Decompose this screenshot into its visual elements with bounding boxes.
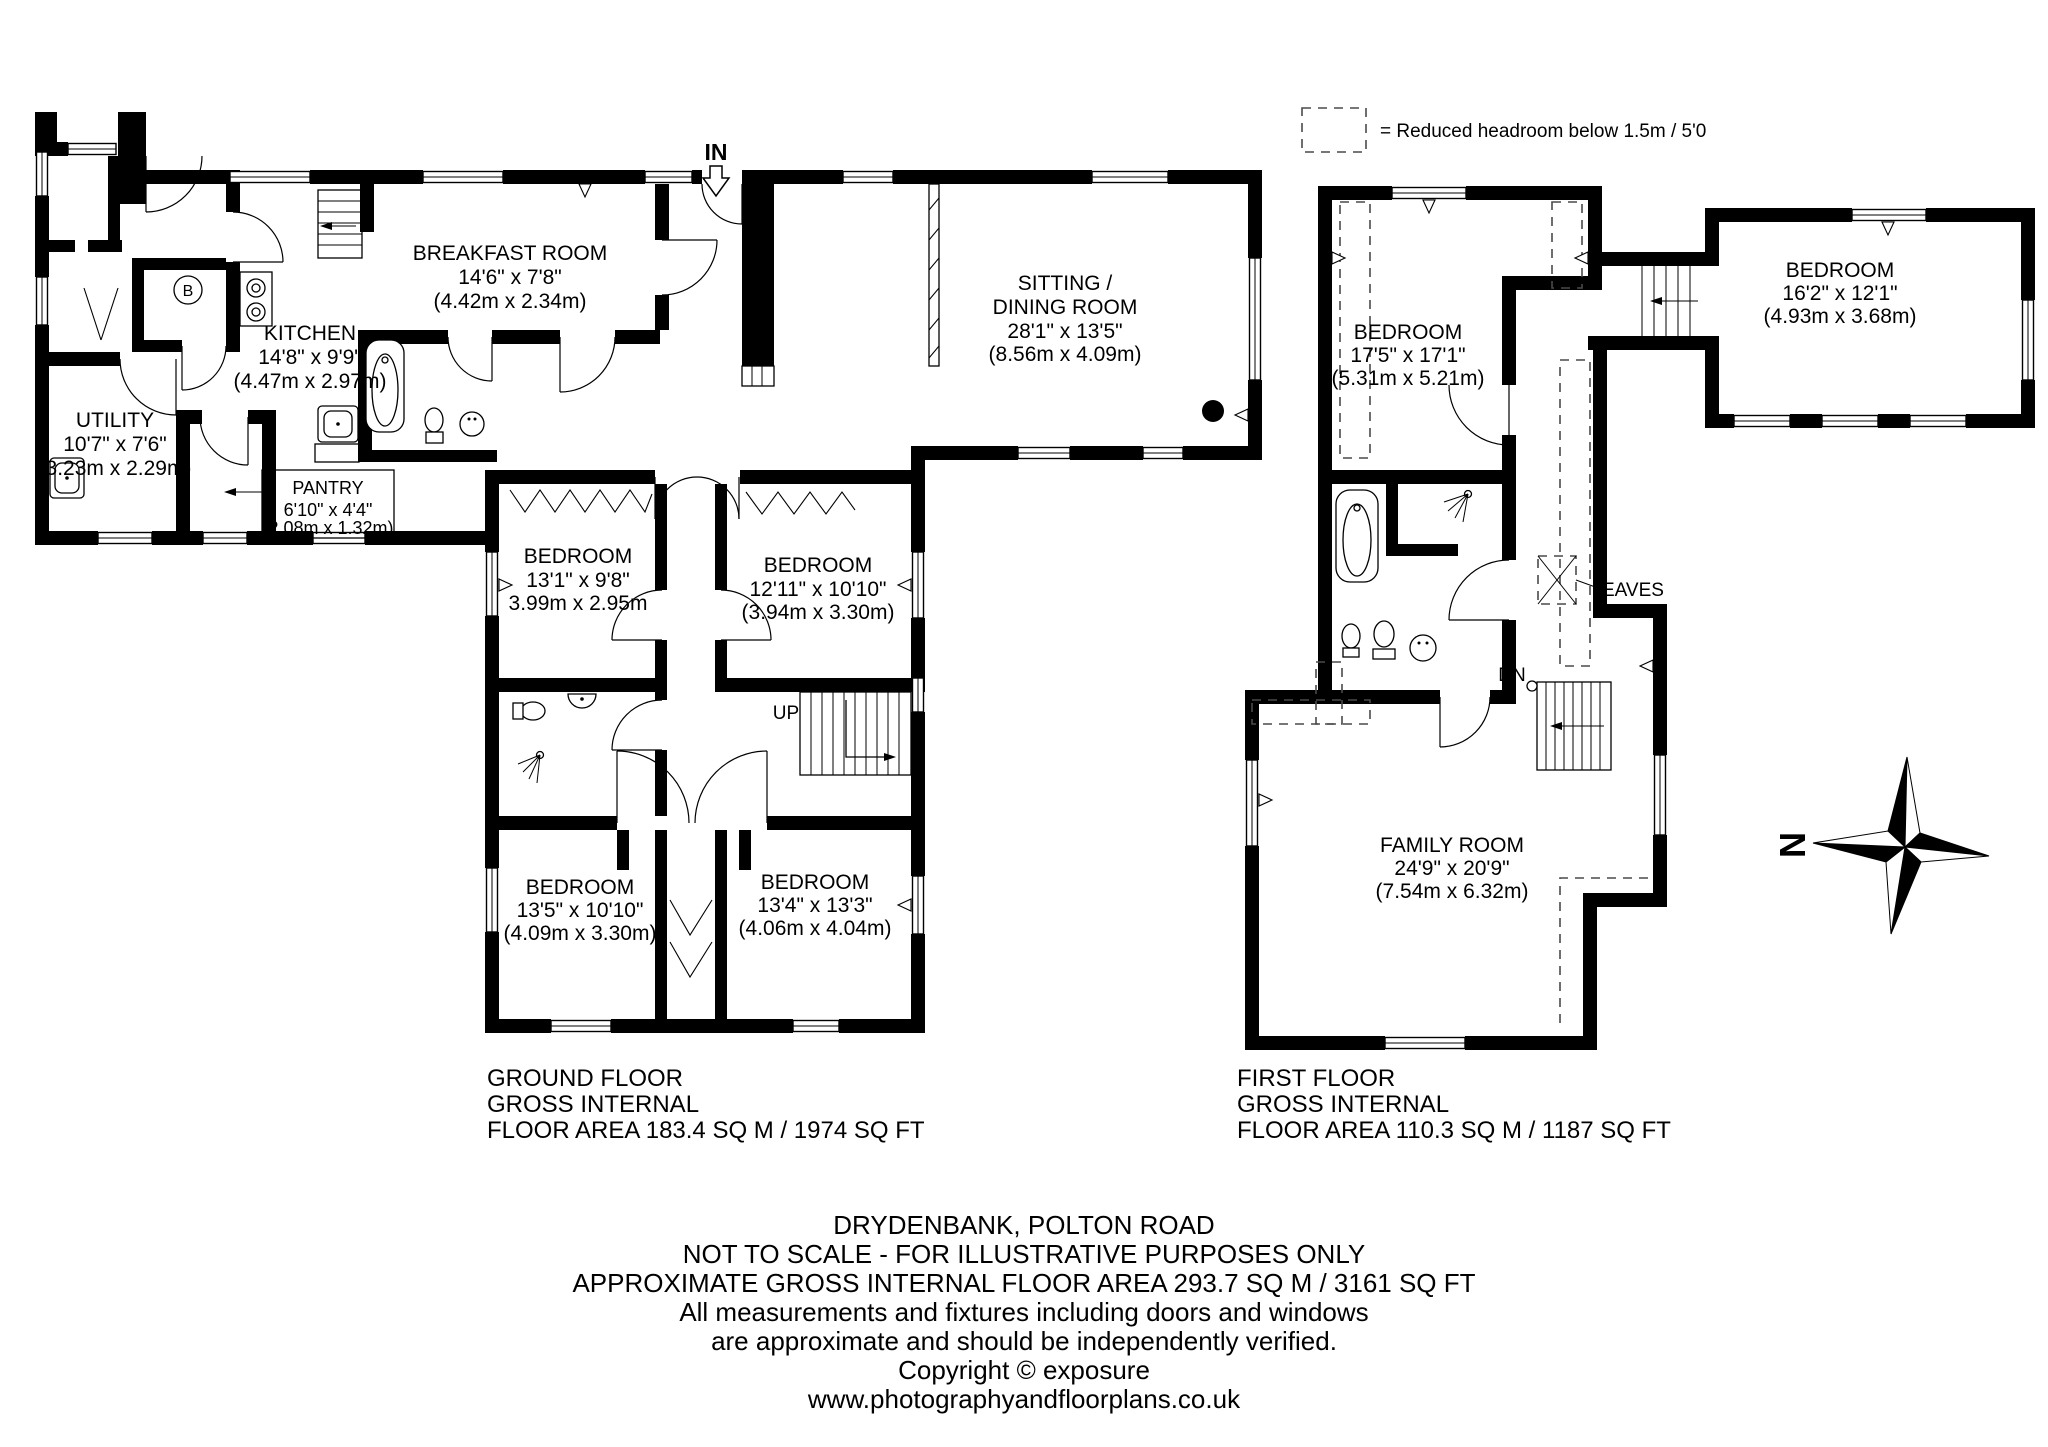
- toilet-icon: [425, 408, 443, 443]
- boiler-label: B: [183, 283, 194, 300]
- svg-text:3.99m x 2.95m: 3.99m x 2.95m: [509, 592, 648, 615]
- ff-toilet-icon: [1373, 621, 1395, 659]
- svg-text:13'5" x 10'10": 13'5" x 10'10": [517, 899, 644, 922]
- svg-text:24'9" x 20'9": 24'9" x 20'9": [1394, 857, 1509, 880]
- svg-text:(5.31m x 5.21m): (5.31m x 5.21m): [1332, 367, 1485, 390]
- svg-text:(2.08m x 1.32m): (2.08m x 1.32m): [262, 518, 393, 538]
- room-label-bedroom-right: BEDROOM 16'2" x 12'1" (4.93m x 3.68m): [1764, 259, 1917, 328]
- svg-text:(7.54m x 6.32m): (7.54m x 6.32m): [1376, 880, 1529, 903]
- legend-dashed-box-icon: [1302, 108, 1366, 152]
- north-label: N: [1772, 832, 1813, 858]
- copyright-note: Copyright © exposure: [898, 1355, 1150, 1385]
- svg-text:KITCHEN: KITCHEN: [264, 322, 356, 345]
- svg-text:FLOOR AREA 183.4 SQ M / 1974 S: FLOOR AREA 183.4 SQ M / 1974 SQ FT: [487, 1117, 925, 1144]
- room-label-bedroom3: BEDROOM 13'5" x 10'10" (4.09m x 3.30m): [504, 876, 657, 945]
- first-floor-walls: [1245, 186, 2035, 1050]
- room-label-sitting-dining: SITTING / DINING ROOM 28'1" x 13'5" (8.5…: [989, 272, 1142, 366]
- compass-rose-icon: N: [1772, 757, 1989, 934]
- svg-text:GROUND FLOOR: GROUND FLOOR: [487, 1065, 683, 1092]
- eaves-label: EAVES: [1602, 580, 1664, 601]
- reduced-headroom-legend: = Reduced headroom below 1.5m / 5'0: [1302, 108, 1706, 152]
- svg-text:13'4" x 13'3": 13'4" x 13'3": [757, 894, 872, 917]
- svg-text:6'10" x 4'4": 6'10" x 4'4": [284, 500, 373, 520]
- first-floor-area-note: FIRST FLOOR GROSS INTERNAL FLOOR AREA 11…: [1237, 1065, 1671, 1144]
- svg-text:FLOOR AREA 110.3 SQ M / 1187 S: FLOOR AREA 110.3 SQ M / 1187 SQ FT: [1237, 1117, 1671, 1144]
- svg-text:GROSS INTERNAL: GROSS INTERNAL: [487, 1091, 699, 1118]
- kitchen-sink-icon: [315, 406, 359, 462]
- footer-notes: DRYDENBANK, POLTON ROAD NOT TO SCALE - F…: [572, 1210, 1475, 1414]
- total-area-note: APPROXIMATE GROSS INTERNAL FLOOR AREA 29…: [572, 1268, 1475, 1298]
- eaves-hatch-icon: [1538, 556, 1598, 604]
- room-label-bedroom-main: BEDROOM 17'5" x 17'1" (5.31m x 5.21m): [1332, 321, 1485, 390]
- svg-text:UTILITY: UTILITY: [76, 409, 154, 432]
- room-label-bedroom2: BEDROOM 12'11" x 10'10" (3.94m x 3.30m): [742, 554, 895, 624]
- room-label-pantry: PANTRY 6'10" x 4'4" (2.08m x 1.32m): [224, 470, 394, 538]
- svg-text:14'6" x 7'8": 14'6" x 7'8": [458, 266, 562, 289]
- disclaimer-line2: are approximate and should be independen…: [711, 1326, 1337, 1356]
- in-arrow-icon: [703, 166, 729, 196]
- wing-basin-icon: [568, 694, 596, 708]
- floorplan-page: = Reduced headroom below 1.5m / 5'0: [0, 0, 2048, 1447]
- svg-text:14'8" x 9'9": 14'8" x 9'9": [258, 346, 362, 369]
- up-stairs-label: UP: [773, 703, 799, 724]
- svg-text:FAMILY ROOM: FAMILY ROOM: [1380, 834, 1524, 857]
- legend-text: = Reduced headroom below 1.5m / 5'0: [1380, 121, 1706, 142]
- entrance-marker: IN: [703, 139, 729, 196]
- svg-text:17'5" x 17'1": 17'5" x 17'1": [1350, 344, 1465, 367]
- room-label-bedroom4: BEDROOM 13'4" x 13'3" (4.06m x 4.04m): [739, 871, 892, 940]
- wood-stove-icon: [1202, 400, 1224, 422]
- ff-bath-icon: [1336, 490, 1378, 582]
- dn-stairs-label: DN: [1498, 665, 1525, 686]
- svg-text:GROSS INTERNAL: GROSS INTERNAL: [1237, 1091, 1449, 1118]
- landing-stairs: [1642, 266, 1698, 336]
- ground-floor-walls: [35, 112, 1262, 1033]
- svg-text:(8.56m x 4.09m): (8.56m x 4.09m): [989, 343, 1142, 366]
- wing-toilet-icon: [513, 702, 545, 720]
- svg-text:BEDROOM: BEDROOM: [524, 545, 633, 568]
- up-stairs: UP: [773, 692, 911, 775]
- svg-text:(4.93m x 3.68m): (4.93m x 3.68m): [1764, 305, 1917, 328]
- room-label-family-room: FAMILY ROOM 24'9" x 20'9" (7.54m x 6.32m…: [1376, 834, 1529, 903]
- svg-text:12'11" x 10'10": 12'11" x 10'10": [750, 578, 887, 601]
- svg-text:(4.06m x 4.04m): (4.06m x 4.04m): [739, 917, 892, 940]
- shower-icon: [518, 752, 544, 784]
- room-label-bedroom1: BEDROOM 13'1" x 9'8" 3.99m x 2.95m: [509, 545, 648, 615]
- svg-text:10'7" x 7'6": 10'7" x 7'6": [63, 433, 167, 456]
- svg-text:SITTING /: SITTING /: [1018, 272, 1113, 295]
- svg-text:PANTRY: PANTRY: [292, 478, 363, 498]
- basin-icon: [460, 412, 484, 436]
- ff-bidet-icon: [1342, 624, 1360, 657]
- ff-basin-icon: [1410, 635, 1436, 661]
- svg-text:BEDROOM: BEDROOM: [526, 876, 635, 899]
- svg-text:(4.42m x 2.34m): (4.42m x 2.34m): [434, 290, 587, 313]
- main-stairs-ground: [318, 190, 362, 258]
- svg-text:BEDROOM: BEDROOM: [764, 554, 873, 577]
- disclaimer-line1: All measurements and fixtures including …: [679, 1297, 1368, 1327]
- svg-text:BREAKFAST ROOM: BREAKFAST ROOM: [413, 242, 608, 265]
- svg-text:BEDROOM: BEDROOM: [1786, 259, 1895, 282]
- ff-shower-icon: [1444, 491, 1472, 523]
- property-title: DRYDENBANK, POLTON ROAD: [833, 1210, 1214, 1240]
- svg-text:28'1" x 13'5": 28'1" x 13'5": [1007, 320, 1122, 343]
- svg-text:13'1" x 9'8": 13'1" x 9'8": [526, 569, 630, 592]
- not-to-scale-note: NOT TO SCALE - FOR ILLUSTRATIVE PURPOSES…: [683, 1239, 1365, 1269]
- ground-floor-room-labels: BREAKFAST ROOM 14'6" x 7'8" (4.42m x 2.3…: [39, 242, 1142, 1144]
- svg-text:BEDROOM: BEDROOM: [1354, 321, 1463, 344]
- svg-text:(4.09m x 3.30m): (4.09m x 3.30m): [504, 922, 657, 945]
- svg-text:FIRST FLOOR: FIRST FLOOR: [1237, 1065, 1395, 1092]
- website-note: www.photographyandfloorplans.co.uk: [807, 1384, 1241, 1414]
- svg-text:(4.47m x 2.97m): (4.47m x 2.97m): [234, 370, 387, 393]
- svg-text:16'2" x 12'1": 16'2" x 12'1": [1782, 282, 1897, 305]
- svg-text:DINING ROOM: DINING ROOM: [993, 296, 1138, 319]
- svg-text:BEDROOM: BEDROOM: [761, 871, 870, 894]
- room-label-breakfast: BREAKFAST ROOM 14'6" x 7'8" (4.42m x 2.3…: [413, 242, 608, 313]
- floorplan-drawing: = Reduced headroom below 1.5m / 5'0: [0, 0, 2048, 1447]
- stove-icon: [240, 272, 272, 326]
- svg-text:(3.23m x 2.29m): (3.23m x 2.29m): [39, 457, 192, 480]
- svg-text:(3.94m x 3.30m): (3.94m x 3.30m): [742, 601, 895, 624]
- in-label: IN: [705, 139, 728, 165]
- dn-stairs: DN: [1498, 665, 1611, 770]
- room-label-utility: UTILITY 10'7" x 7'6" (3.23m x 2.29m): [39, 409, 192, 480]
- ground-floor-area-note: GROUND FLOOR GROSS INTERNAL FLOOR AREA 1…: [487, 1065, 925, 1144]
